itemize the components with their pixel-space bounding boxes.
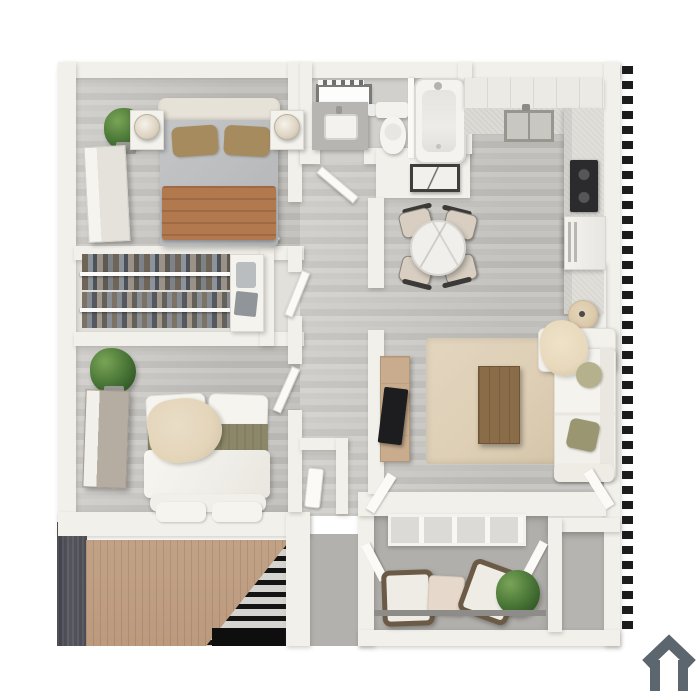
sliding-glass-door	[388, 514, 526, 546]
bedroom2-dresser	[82, 389, 129, 488]
staircase-dark-wall	[57, 522, 87, 646]
linen-cabinet-panel-bottom	[234, 291, 258, 317]
outer-wall-bottom	[358, 630, 620, 646]
wall-hall-left-c	[288, 410, 302, 512]
storage-floor	[556, 532, 606, 632]
refrigerator-handles	[568, 222, 571, 262]
bed1-pillow-right	[223, 125, 271, 157]
table-lamp-left	[134, 114, 160, 140]
patio-edge-strip	[374, 610, 546, 616]
wall-art-frame	[410, 164, 460, 192]
bedroom1-dresser	[84, 145, 131, 243]
linen-cabinet-panel-top	[236, 262, 256, 288]
cooktop	[570, 160, 598, 212]
floor-lamp-finial	[579, 311, 585, 317]
floorplan-render	[0, 0, 700, 700]
kitchen-upper-cabinets	[464, 78, 604, 108]
kitchen-faucet	[522, 104, 530, 111]
vanity-light-bulbs	[318, 80, 364, 85]
closet-rail-top	[80, 272, 234, 276]
bed1-headboard	[158, 98, 280, 122]
house-outline-icon	[642, 634, 696, 692]
wall-living-patio	[358, 492, 606, 516]
sofa-pillow-sage	[576, 362, 602, 388]
shower-head	[434, 82, 442, 90]
wall-hall-left-a	[288, 246, 302, 272]
landing-floor	[308, 534, 360, 646]
coffee-table	[478, 366, 520, 444]
bed2-bench-cushion-right	[212, 502, 262, 522]
table-lamp-right	[274, 114, 300, 140]
wall-patio-left	[358, 512, 374, 646]
bathtub-basin	[422, 90, 456, 152]
dining-table	[410, 220, 466, 276]
hatch-marks-right	[622, 66, 633, 630]
bed1-blanket	[162, 186, 276, 240]
sofa-backrest	[600, 348, 614, 478]
wall-storage-left	[548, 518, 562, 632]
staircase-void	[212, 628, 292, 646]
entry-closet-right	[336, 438, 348, 514]
wall-hall-left-b	[288, 316, 302, 364]
bed2-bench-cushion-left	[156, 502, 206, 522]
closet-rail-bottom	[80, 308, 234, 312]
wall-landing-left	[286, 512, 310, 646]
outer-wall-top	[60, 62, 620, 78]
toilet-paper-holder	[368, 104, 376, 116]
wall-dining-stub	[368, 198, 384, 288]
vanity-sink	[324, 114, 358, 140]
wall-bath-bottom-a	[300, 148, 320, 164]
bathtub-drain	[436, 144, 441, 149]
outer-wall-left	[58, 62, 76, 520]
kitchen-sink	[504, 110, 554, 142]
vanity-faucet	[336, 106, 342, 114]
sofa-pillow-olive	[565, 417, 601, 453]
bed1-pillow-left	[171, 124, 219, 157]
toilet-bowl	[380, 116, 406, 154]
